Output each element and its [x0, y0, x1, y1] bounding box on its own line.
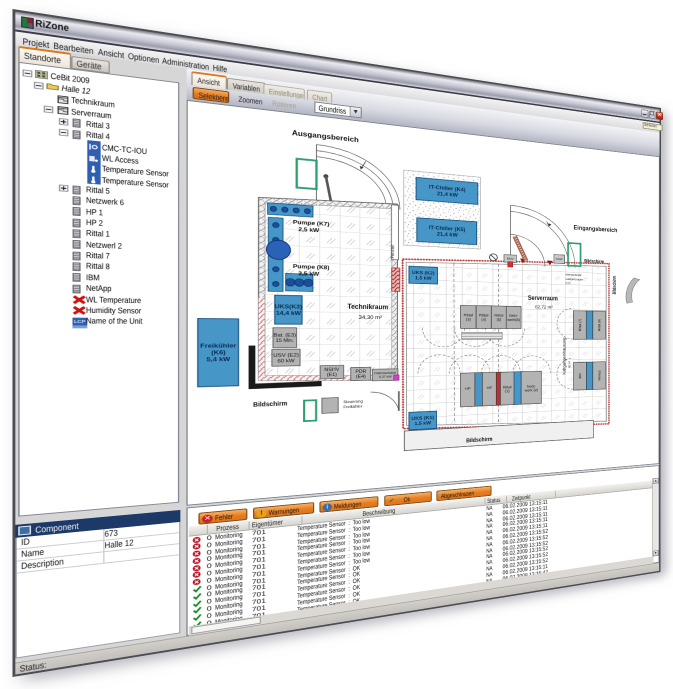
svg-text:(K6): (K6): [211, 349, 226, 356]
svg-text:Rittal (8): Rittal (8): [598, 319, 602, 331]
svg-text:Eingangsbereich: Eingangsbereich: [574, 225, 618, 234]
svg-text:62,72 m²: 62,72 m²: [535, 305, 553, 309]
svg-text:Ausgangsbereich: Ausgangsbereich: [292, 129, 359, 144]
svg-text:Serverraum: Serverraum: [528, 294, 558, 302]
svg-text:NetApp: NetApp: [598, 370, 602, 380]
svg-text:1,5 kW: 1,5 kW: [415, 276, 432, 281]
svg-text:werk (2): werk (2): [524, 389, 538, 393]
svg-text:60 kW: 60 kW: [277, 359, 295, 364]
svg-text:(5): (5): [497, 318, 502, 322]
svg-text:3 kW: 3 kW: [556, 258, 563, 262]
svg-text:Bildschirm: Bildschirm: [584, 258, 604, 264]
svg-text:werk(6): werk(6): [507, 318, 521, 322]
svg-text:21,4 kW: 21,4 kW: [437, 231, 458, 238]
svg-text:Netz-: Netz-: [509, 314, 518, 318]
svg-text:Fenster: Fenster: [390, 244, 395, 258]
svg-text:(3): (3): [466, 318, 471, 322]
svg-text:15 Min.: 15 Min.: [276, 338, 295, 343]
svg-text:(E1): (E1): [327, 373, 337, 378]
svg-text:USV (E2): USV (E2): [273, 353, 299, 358]
svg-text:1,5 kW: 1,5 kW: [414, 421, 431, 426]
svg-text:Rittal: Rittal: [464, 314, 473, 318]
svg-text:IBM: IBM: [579, 373, 583, 379]
svg-text:14,4 kW: 14,4 kW: [276, 310, 302, 317]
svg-text:(4): (4): [481, 318, 486, 322]
svg-text:(L2): (L2): [566, 281, 571, 284]
svg-text:Technikraum: Technikraum: [347, 303, 388, 312]
svg-text:Klimaschrank: Klimaschrank: [566, 273, 582, 277]
svg-text:(E4): (E4): [356, 375, 366, 380]
svg-text:Rittal: Rittal: [494, 314, 503, 318]
svg-text:HP: HP: [465, 387, 471, 391]
svg-text:Rittal (7): Rittal (7): [579, 319, 583, 331]
svg-text:5,4 kW: 5,4 kW: [206, 356, 230, 363]
svg-text:Steuerung: Steuerung: [343, 400, 363, 405]
svg-text:Freikühler: Freikühler: [343, 405, 362, 410]
svg-text:2,5 kW: 2,5 kW: [298, 226, 319, 233]
svg-text:0,37 kW: 0,37 kW: [379, 375, 392, 379]
svg-text:2,5 kW: 2,5 kW: [298, 270, 319, 277]
svg-text:60 m²: 60 m²: [568, 361, 571, 368]
svg-text:Bat. (E3): Bat. (E3): [274, 333, 296, 338]
svg-text:Rittal: Rittal: [479, 314, 488, 318]
svg-text:BM2: BM2: [507, 257, 514, 261]
svg-text:HP: HP: [487, 386, 493, 390]
svg-text:Freikühler: Freikühler: [200, 343, 236, 350]
svg-text:Kaltgangeinhausung: Kaltgangeinhausung: [562, 337, 566, 374]
svg-text:34,30 m²: 34,30 m²: [359, 314, 383, 320]
svg-text:LCP: LCP: [73, 320, 85, 325]
svg-text:Bildschirm: Bildschirm: [253, 399, 287, 408]
svg-text:Bildschirm: Bildschirm: [612, 276, 617, 295]
svg-text:(1): (1): [505, 390, 510, 394]
